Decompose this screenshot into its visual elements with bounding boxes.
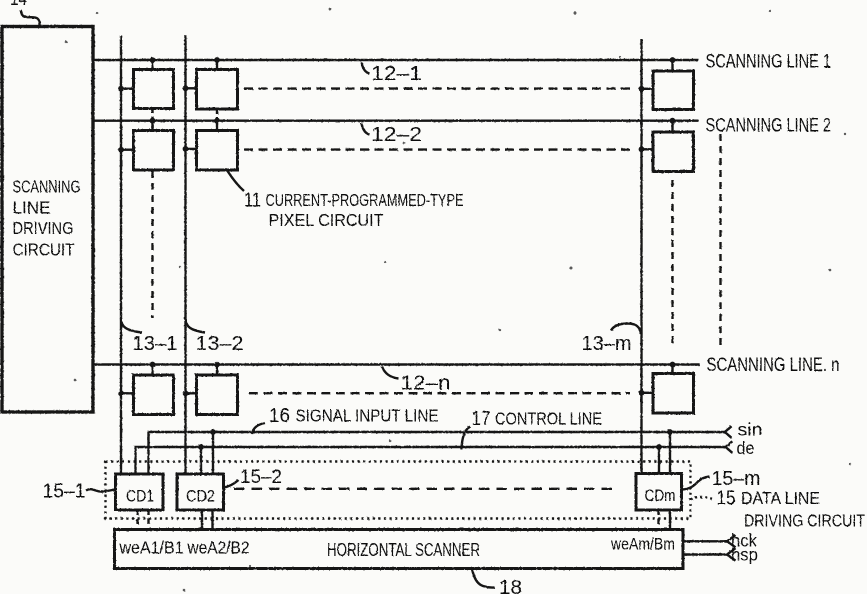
svg-text:CDm: CDm bbox=[645, 486, 676, 505]
svg-text:DATA LINE: DATA LINE bbox=[741, 488, 820, 508]
svg-text:CONTROL LINE: CONTROL LINE bbox=[495, 409, 602, 429]
svg-text:LINE: LINE bbox=[13, 197, 51, 217]
svg-text:16: 16 bbox=[269, 405, 290, 427]
svg-text:CD1: CD1 bbox=[126, 487, 154, 506]
svg-text:15: 15 bbox=[717, 488, 736, 510]
svg-text:CURRENT-PROGRAMMED-TYPE: CURRENT-PROGRAMMED-TYPE bbox=[266, 190, 464, 210]
svg-text:PIXEL CIRCUIT: PIXEL CIRCUIT bbox=[269, 210, 384, 230]
svg-text:SCANNING LINE. n: SCANNING LINE. n bbox=[707, 354, 840, 376]
svg-text:15–1: 15–1 bbox=[43, 480, 86, 503]
svg-text:13–m: 13–m bbox=[582, 332, 632, 355]
svg-text:SCANNING LINE 2: SCANNING LINE 2 bbox=[706, 115, 832, 137]
svg-text:weA2/B2: weA2/B2 bbox=[187, 538, 250, 558]
svg-text:14: 14 bbox=[10, 0, 27, 10]
svg-text:SIGNAL INPUT LINE: SIGNAL INPUT LINE bbox=[296, 405, 439, 425]
svg-text:18: 18 bbox=[499, 577, 522, 594]
svg-text:12–n: 12–n bbox=[401, 372, 451, 395]
svg-text:CIRCUIT: CIRCUIT bbox=[13, 239, 75, 259]
svg-text:weA1/B1: weA1/B1 bbox=[119, 538, 184, 558]
svg-text:15–2: 15–2 bbox=[240, 467, 282, 488]
svg-text:DRIVING CIRCUIT: DRIVING CIRCUIT bbox=[744, 511, 865, 531]
svg-text:11: 11 bbox=[244, 190, 261, 212]
svg-text:13–2: 13–2 bbox=[196, 332, 244, 355]
svg-text:DRIVING: DRIVING bbox=[13, 218, 74, 238]
svg-text:SCANNING: SCANNING bbox=[13, 177, 81, 197]
svg-text:12–2: 12–2 bbox=[371, 123, 422, 146]
svg-text:SCANNING LINE 1: SCANNING LINE 1 bbox=[706, 51, 832, 73]
svg-text:12–1: 12–1 bbox=[371, 62, 422, 85]
svg-text:17: 17 bbox=[472, 408, 491, 430]
svg-text:HORIZONTAL SCANNER: HORIZONTAL SCANNER bbox=[327, 540, 480, 560]
svg-text:de: de bbox=[737, 438, 755, 458]
svg-text:CD2: CD2 bbox=[186, 487, 215, 506]
svg-text:weAm/Bm: weAm/Bm bbox=[610, 535, 675, 554]
svg-text:hsp: hsp bbox=[731, 545, 758, 565]
svg-text:13–1: 13–1 bbox=[133, 332, 178, 355]
svg-text:sin: sin bbox=[738, 420, 763, 440]
